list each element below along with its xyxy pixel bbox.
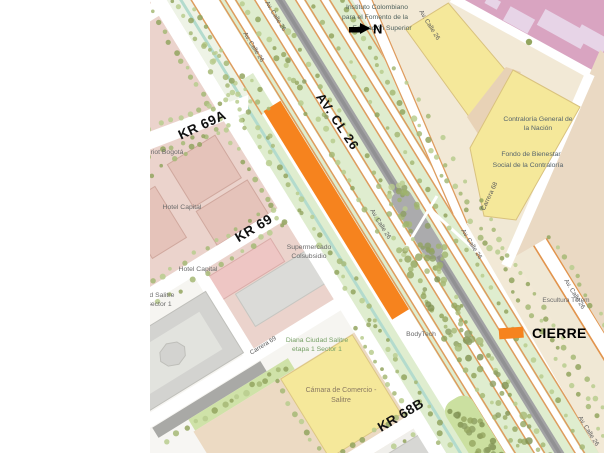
svg-text:N: N	[373, 22, 382, 37]
svg-text:para el Fomento de la: para el Fomento de la	[342, 14, 408, 21]
svg-text:Fondo de Bienestar: Fondo de Bienestar	[501, 151, 561, 158]
svg-text:Instituto Colombiano: Instituto Colombiano	[346, 4, 408, 11]
svg-text:riot Bogotá: riot Bogotá	[151, 149, 184, 156]
svg-text:Hotel Capital: Hotel Capital	[163, 204, 202, 211]
svg-text:Diana Ciudad Salitre: Diana Ciudad Salitre	[286, 337, 349, 344]
svg-text:BodyTech: BodyTech	[406, 331, 436, 338]
svg-text:Supermercado: Supermercado	[287, 244, 332, 251]
svg-text:Contraloría General de: Contraloría General de	[503, 116, 572, 123]
svg-text:Sector 1: Sector 1	[146, 301, 172, 308]
svg-text:Salitre: Salitre	[331, 397, 351, 404]
svg-text:Cámara de Comercio -: Cámara de Comercio -	[306, 387, 377, 394]
svg-text:la Nación: la Nación	[524, 125, 553, 132]
svg-text:etapa 1 Sector 1: etapa 1 Sector 1	[292, 346, 342, 353]
svg-text:Colsubsidio: Colsubsidio	[291, 253, 326, 260]
svg-text:Social de la Contraloría: Social de la Contraloría	[493, 162, 564, 169]
svg-text:Hotel Capital: Hotel Capital	[179, 266, 218, 273]
svg-text:CIERRE: CIERRE	[532, 325, 587, 341]
